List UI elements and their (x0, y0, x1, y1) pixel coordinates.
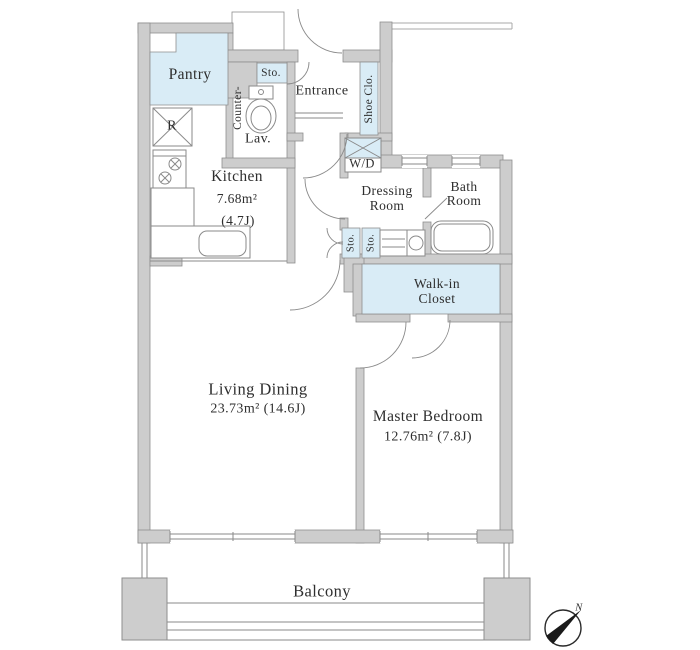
compass-north-label: N (575, 602, 582, 613)
closet-door (412, 320, 450, 358)
living-door (290, 260, 340, 310)
window-bath (452, 155, 480, 168)
bedroom-door (360, 322, 406, 368)
stove-icon (153, 150, 186, 188)
balcony-label: Balcony (293, 582, 351, 599)
refrigerator-label: R (167, 120, 177, 135)
walkin-closet-label-1: Walk-in (414, 277, 460, 291)
sto-hall-left-label: Sto. (345, 234, 356, 252)
dressing-room-label-1: Dressing (361, 184, 412, 198)
washer-dryer-label: W/D (349, 157, 375, 170)
dressing-room-label-2: Room (370, 199, 405, 213)
sto-entrance-label: Sto. (261, 67, 281, 79)
window-dressing (402, 155, 427, 168)
entry-door (298, 9, 342, 53)
pantry-label: Pantry (169, 67, 212, 83)
fixtures (150, 86, 493, 261)
sink-icon (199, 231, 246, 256)
living-dining-area: 23.73m² (14.6J) (210, 403, 305, 418)
windows (170, 155, 480, 543)
living-dining-label: Living Dining (208, 380, 307, 397)
kitchen-label: Kitchen (211, 169, 263, 185)
window-living (170, 530, 295, 543)
bathtub-icon (431, 221, 493, 254)
shoe-closet-label: Shoe Clo. (363, 75, 375, 124)
bath-room-label-2: Room (447, 194, 482, 208)
kitchen-area-sqm: 7.68m² (217, 192, 258, 206)
bath-folding-door (425, 198, 447, 219)
vanity-icon (380, 230, 425, 256)
floorplan-drawing (0, 0, 700, 650)
sto-hall-right-label: Sto. (365, 234, 376, 252)
entrance-step (295, 113, 343, 118)
kitchen-area-jo: (4.7J) (221, 214, 255, 228)
entrance-label: Entrance (296, 85, 349, 100)
counter-label: Counter- (232, 86, 244, 130)
toilet-icon (246, 86, 276, 133)
dressing-door (305, 179, 345, 219)
floor-plan: Pantry Sto. Entrance Shoe Clo. Counter- … (0, 0, 700, 650)
master-bedroom-label: Master Bedroom (373, 409, 483, 425)
master-bedroom-area: 12.76m² (7.8J) (384, 431, 472, 446)
walkin-closet-label-2: Closet (419, 292, 456, 306)
compass-icon (545, 610, 581, 646)
window-bedroom (380, 530, 477, 543)
lav-label: Lav. (245, 133, 271, 148)
neighbor-outline (392, 23, 512, 29)
